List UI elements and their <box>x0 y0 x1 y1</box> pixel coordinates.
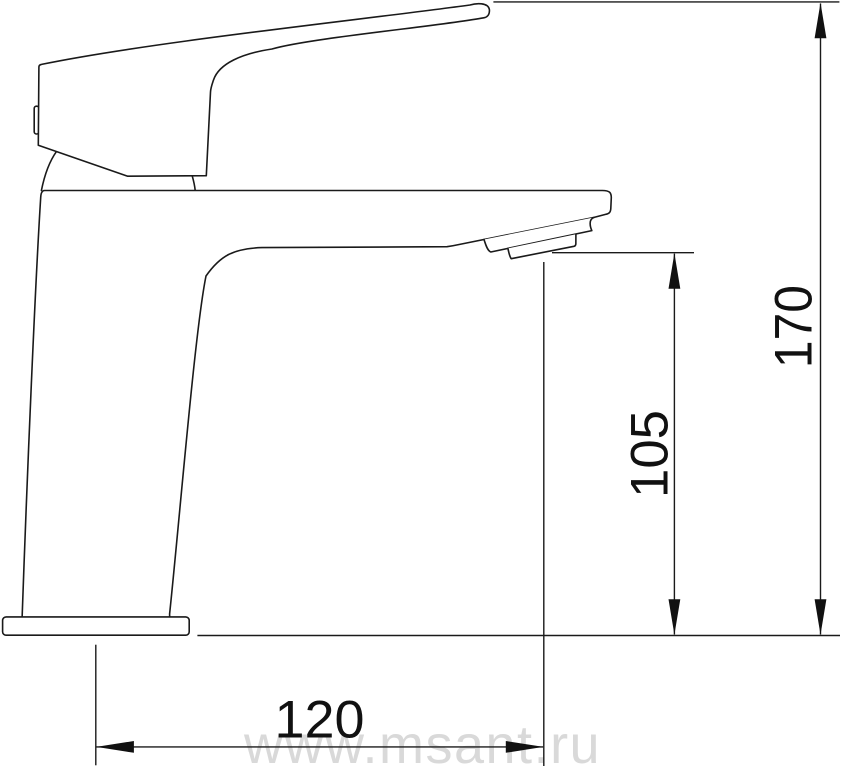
svg-text:105: 105 <box>620 410 679 498</box>
svg-text:120: 120 <box>275 690 365 749</box>
svg-text:170: 170 <box>764 285 823 368</box>
